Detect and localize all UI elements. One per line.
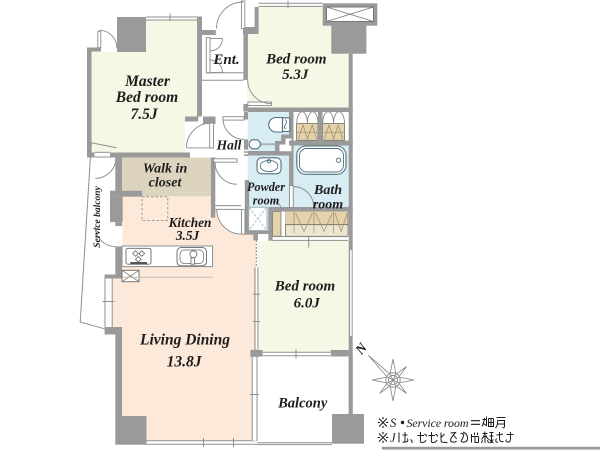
svg-text:Bed room: Bed room: [115, 89, 178, 106]
svg-text:5.3J: 5.3J: [282, 67, 309, 83]
svg-text:Bed room: Bed room: [274, 279, 335, 295]
svg-text:6.0J: 6.0J: [294, 295, 321, 311]
svg-text:7.5J: 7.5J: [130, 106, 158, 123]
svg-text:Powder: Powder: [247, 180, 285, 194]
svg-text:Ent.: Ent.: [212, 52, 239, 68]
svg-text:Service balcony: Service balcony: [93, 185, 103, 247]
svg-text:Walk in: Walk in: [143, 162, 188, 177]
svg-text:room: room: [253, 194, 279, 208]
svg-text:13.8J: 13.8J: [167, 353, 203, 370]
svg-text:Living Dining: Living Dining: [139, 332, 230, 349]
svg-text:closet: closet: [149, 175, 183, 190]
svg-text:Bed room: Bed room: [265, 51, 326, 67]
svg-text:Hall: Hall: [216, 138, 242, 153]
svg-text:Bath: Bath: [313, 183, 342, 198]
svg-text:Balcony: Balcony: [277, 396, 328, 412]
svg-text:Master: Master: [124, 73, 171, 90]
svg-text:S: S: [390, 416, 397, 430]
svg-text:3.5J: 3.5J: [175, 228, 200, 243]
svg-text:Service room: Service room: [407, 416, 469, 430]
svg-text:room: room: [313, 198, 343, 213]
